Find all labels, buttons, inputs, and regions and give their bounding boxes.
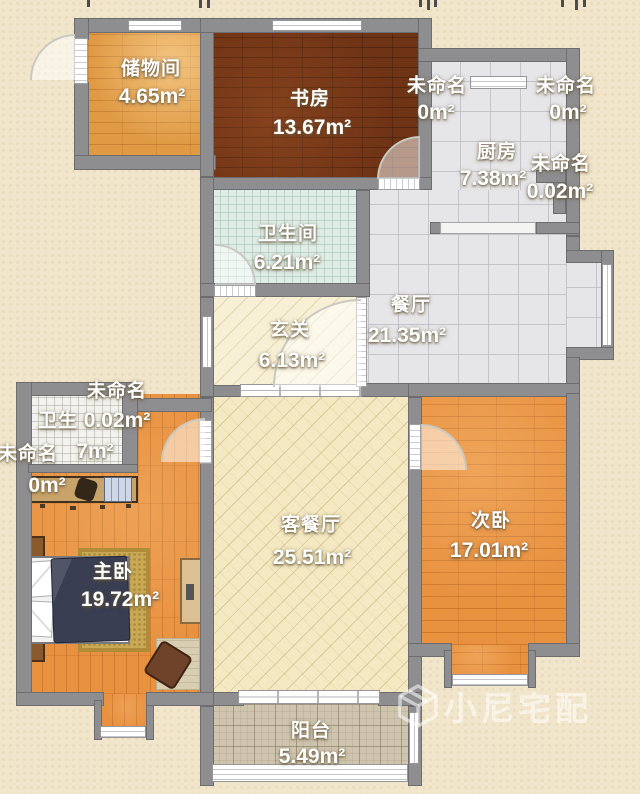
room-label-study: 书房 [290,84,330,111]
floor-master-bump[interactable] [100,694,146,728]
room-label-unnamed-2: 未命名 [536,71,596,98]
room-area-second: 17.01m² [450,539,528,563]
room-label-unnamed-1: 未命名 [407,71,467,98]
room-area-living: 25.51m² [273,546,351,570]
ruler-tick [87,0,90,7]
door-leaf-second[interactable] [409,424,421,470]
window[interactable] [470,76,527,89]
ruler-tick [207,0,210,8]
room-label-kitchen: 厨房 [477,137,517,164]
window[interactable] [602,264,612,346]
room-area-bathroom: 6.21m² [254,251,321,275]
window[interactable] [272,20,362,31]
room-label-living: 客餐厅 [281,510,341,537]
floor-second-bump[interactable] [444,645,528,677]
decor-dot [40,504,45,508]
kitchen-opening[interactable] [440,222,536,234]
wall [536,222,580,234]
wall [74,155,216,170]
decor-dot [126,504,131,508]
room-label-master: 主卧 [93,557,133,584]
room-area-entry: 6.13m² [259,349,326,373]
door-arc-storage [30,34,75,80]
room-label-unnamed-4: 未命名 [87,376,147,403]
wall [200,177,214,297]
room-label-unnamed-5: 未命名 [0,439,58,466]
wall [200,18,214,177]
ruler-tick [561,0,564,7]
room-area-unnamed-3: 0.02m² [527,180,594,204]
room-area-unnamed-1: 0m² [417,101,454,125]
ruler-tick [575,0,578,10]
wall [74,18,89,40]
ruler-tick [199,0,202,8]
wall [356,190,370,297]
wall [146,692,214,706]
window[interactable] [100,726,146,738]
door-leaf-study[interactable] [378,178,420,190]
wall [16,382,32,706]
room-label-second: 次卧 [471,506,511,533]
room-area-dining: 21.35m² [368,324,446,348]
wall [418,48,580,62]
floor-dining-bay[interactable] [566,262,604,348]
room-label-storage: 储物间 [121,54,181,81]
wall [213,385,243,397]
door-leaf-storage[interactable] [74,38,88,84]
sliding-door-balcony[interactable] [238,690,380,704]
ruler-tick [419,0,422,7]
room-area-storage: 4.65m² [119,85,186,109]
room-label-bathroom: 卫生间 [258,219,318,246]
side-desk-item [186,584,194,600]
watermark-text: 小尼宅配 [444,682,592,730]
room-area-balcony: 5.49m² [279,745,346,769]
watermark: 小尼宅配 [398,682,592,730]
room-area-unnamed-4: 0.02m² [84,409,151,433]
room-area-study: 13.67m² [273,116,351,140]
wall [16,692,104,706]
room-area-unnamed-5: 0m² [28,474,65,498]
floor-living-room[interactable] [213,395,409,695]
room-label-dining: 餐厅 [391,290,431,317]
decor-dot [100,505,105,509]
decor-dot [70,506,76,510]
room-area-unnamed-2: 0m² [549,101,586,125]
room-label-bathroom-2: 卫生 [38,406,78,433]
wall [566,393,580,653]
window[interactable] [128,20,182,31]
ruler-tick [427,0,430,10]
ruler-tick [583,0,586,7]
room-area-bathroom-2: 7m² [76,440,113,464]
watermark-cube-icon [398,684,438,728]
floor-dining-room[interactable] [368,190,566,385]
door-leaf-bathroom[interactable] [214,285,256,297]
window[interactable] [202,316,212,368]
room-area-kitchen: 7.38m² [460,167,527,191]
room-label-unnamed-3: 未命名 [531,149,591,176]
wardrobe[interactable] [104,477,132,502]
wall [408,383,580,397]
ruler-tick [434,0,437,7]
room-label-balcony: 阳台 [291,716,331,743]
room-label-entry: 玄关 [270,315,310,342]
room-area-master: 19.72m² [81,588,159,612]
floor-plan: 储物间 4.65m² 书房 13.67m² 未命名 0m² 未命名 0m² 厨房… [0,0,640,794]
